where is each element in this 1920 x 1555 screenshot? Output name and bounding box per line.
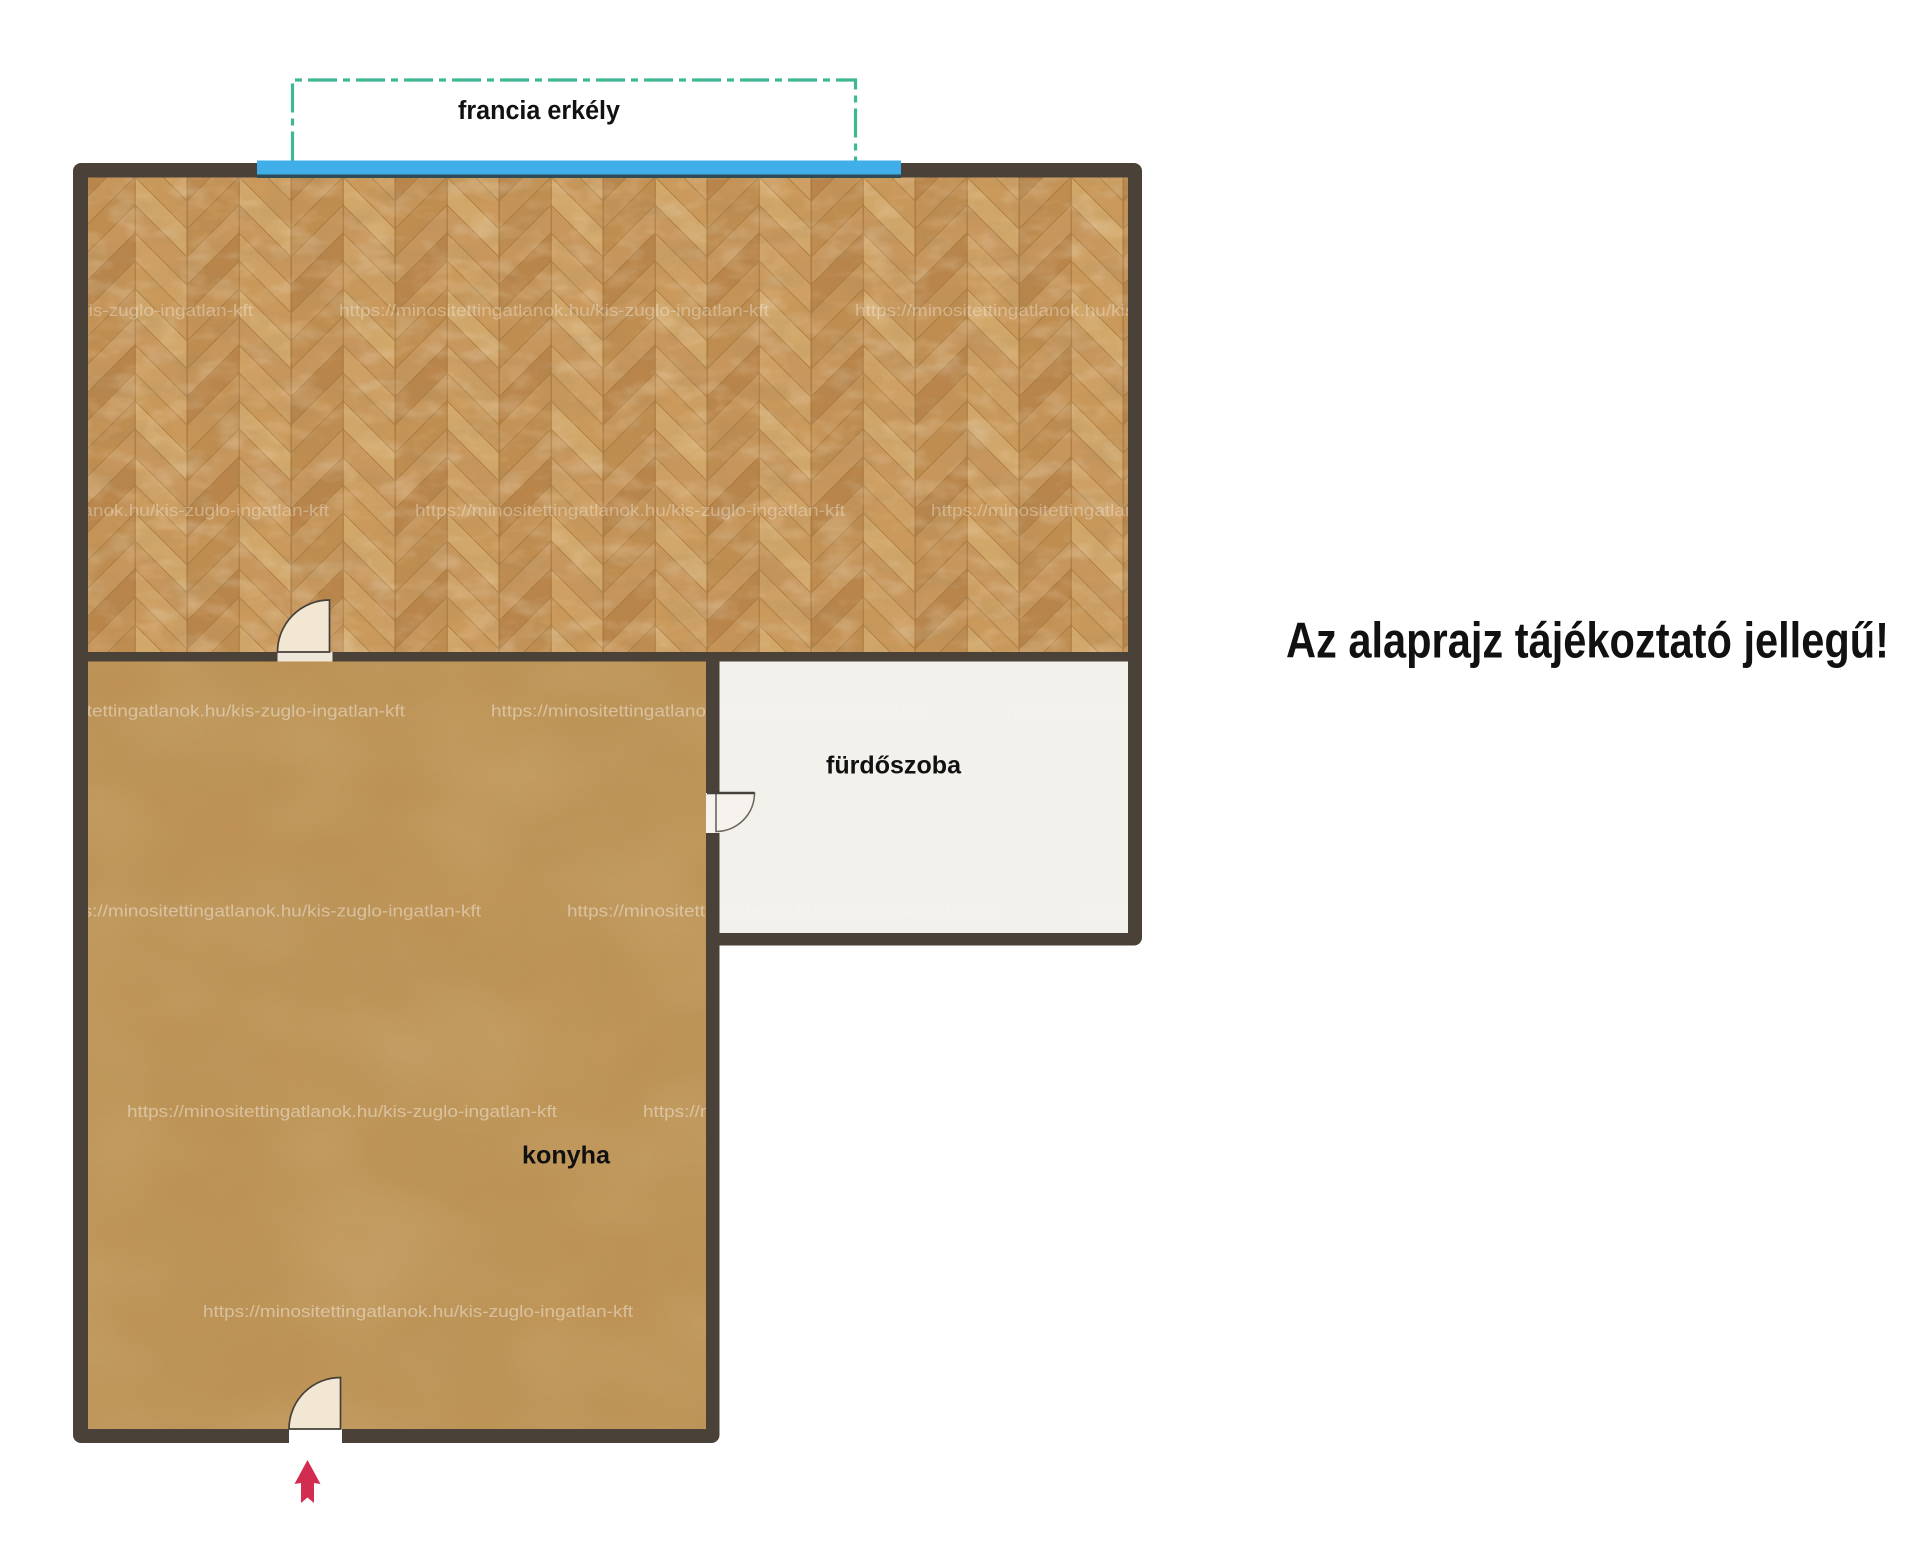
svg-text:https://minositettingatlanok.h: https://minositettingatlanok.hu/kis-zugl… (1083, 902, 1513, 921)
svg-text:https://minositettingatlanok.h: https://minositettingatlanok.hu/kis-zugl… (1083, 902, 1513, 921)
svg-text:https://minositettingatlanok.h: https://minositettingatlanok.hu/kis-zugl… (1083, 902, 1513, 921)
svg-text:https://minositettingatlanok.h: https://minositettingatlanok.hu/kis-zugl… (0, 501, 329, 520)
svg-text:https://minositettingatlanok.h: https://minositettingatlanok.hu/kis-zugl… (931, 501, 1361, 520)
svg-text:https://minositettingatlanok.h: https://minositettingatlanok.hu/kis-zugl… (0, 301, 253, 320)
svg-text:https://minositettingatlanok.h: https://minositettingatlanok.hu/kis-zugl… (1007, 701, 1437, 720)
svg-text:https://minositettingatlanok.h: https://minositettingatlanok.hu/kis-zugl… (1235, 1302, 1665, 1321)
svg-text:https://minositettingatlanok.h: https://minositettingatlanok.hu/kis-zugl… (51, 902, 481, 921)
svg-text:https://minositettingatlanok.h: https://minositettingatlanok.hu/kis-zugl… (203, 1302, 633, 1321)
svg-text:https://minositettingatlanok.h: https://minositettingatlanok.hu/kis-zugl… (1159, 1102, 1589, 1121)
svg-text:konyha: konyha (522, 1142, 611, 1170)
svg-text:francia erkély: francia erkély (458, 97, 621, 125)
svg-text:Az alaprajz tájékoztató jelleg: Az alaprajz tájékoztató jellegű! (1286, 613, 1889, 669)
svg-text:https://minositettingatlanok.h: https://minositettingatlanok.hu/kis-zugl… (1159, 1102, 1589, 1121)
svg-text:fürdőszoba: fürdőszoba (826, 752, 962, 780)
svg-text:https://minositettingatlanok.h: https://minositettingatlanok.hu/kis-zugl… (1235, 1302, 1665, 1321)
svg-text:https://minositettingatlanok.h: https://minositettingatlanok.hu/kis-zugl… (127, 1102, 557, 1121)
svg-text:https://minositettingatlanok.h: https://minositettingatlanok.hu/kis-zugl… (1235, 1302, 1665, 1321)
svg-text:https://minositettingatlanok.h: https://minositettingatlanok.hu/kis-zugl… (1159, 1102, 1589, 1121)
svg-text:https://minositettingatlanok.h: https://minositettingatlanok.hu/kis-zugl… (719, 1302, 1149, 1321)
svg-text:https://minositettingatlanok.h: https://minositettingatlanok.hu/kis-zugl… (415, 501, 845, 520)
svg-text:https://minositettingatlanok.h: https://minositettingatlanok.hu/kis-zugl… (339, 301, 769, 320)
svg-text:https://minositettingatlanok.h: https://minositettingatlanok.hu/kis-zugl… (719, 1302, 1149, 1321)
svg-text:https://minositettingatlanok.h: https://minositettingatlanok.hu/kis-zugl… (855, 301, 1285, 320)
svg-text:https://minositettingatlanok.h: https://minositettingatlanok.hu/kis-zugl… (719, 1302, 1149, 1321)
svg-text:https://minositettingatlanok.h: https://minositettingatlanok.hu/kis-zugl… (0, 701, 405, 720)
